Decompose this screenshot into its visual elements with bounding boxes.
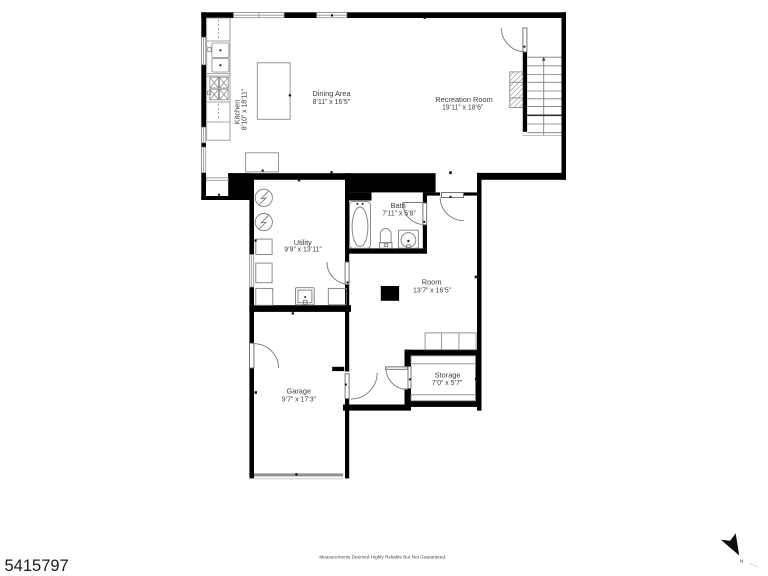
svg-text:19’11” x 18’6”: 19’11” x 18’6”: [442, 105, 484, 112]
svg-text:7’11” x 5’8”: 7’11” x 5’8”: [382, 210, 416, 217]
svg-text:Bath: Bath: [391, 201, 406, 210]
svg-text:N: N: [740, 558, 743, 563]
svg-text:Garage: Garage: [286, 386, 311, 395]
svg-text:Dining Area: Dining Area: [312, 89, 351, 98]
svg-text:Kitchen: Kitchen: [233, 100, 242, 125]
svg-text:Recreation Room: Recreation Room: [435, 95, 493, 104]
svg-text:13’7” x 16’5”: 13’7” x 16’5”: [413, 288, 452, 295]
svg-text:8’11” x 16’5”: 8’11” x 16’5”: [313, 99, 351, 106]
svg-text:5415797: 5415797: [5, 557, 69, 575]
svg-text:Storage: Storage: [435, 370, 461, 379]
svg-text:Measurements Deemed Highly Rel: Measurements Deemed Highly Reliable But …: [319, 555, 446, 560]
svg-text:7’0” x 5’7”: 7’0” x 5’7”: [432, 380, 463, 387]
svg-text:8’10” x 18’11”: 8’10” x 18’11”: [241, 88, 248, 130]
svg-text:9’9” x 13’11”: 9’9” x 13’11”: [284, 247, 322, 254]
svg-text:9’7” x 17’3”: 9’7” x 17’3”: [282, 397, 317, 404]
svg-text:Room: Room: [422, 278, 442, 287]
svg-text:Utility: Utility: [294, 238, 312, 247]
